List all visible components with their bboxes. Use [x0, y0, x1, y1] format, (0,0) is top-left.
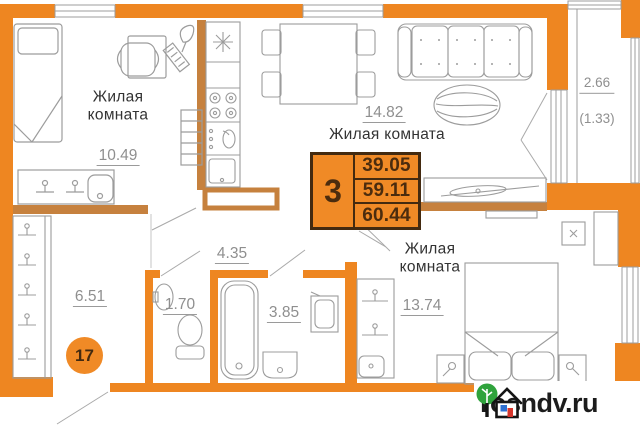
- apartment-summary-box: 3 39.05 59.11 60.44: [310, 152, 421, 230]
- kitchen-bar: [205, 190, 277, 208]
- watermark: rosndv.ru: [474, 381, 640, 425]
- plant: [180, 25, 193, 42]
- balcony-area: 2.66 (1.33): [579, 58, 614, 144]
- bedroom-left-area: 10.49: [97, 129, 140, 165]
- living-area-value: 39.05: [355, 155, 418, 178]
- chair: [262, 30, 281, 55]
- bath-sink: [263, 352, 297, 378]
- coat-hooks: [18, 224, 36, 359]
- kitchen-living-label: Жилая комната: [329, 126, 445, 144]
- chair: [356, 30, 375, 55]
- hallway-area: 6.51: [73, 270, 107, 306]
- desk: [128, 36, 166, 78]
- bedroom-right-area: 13.74: [401, 279, 444, 315]
- bathroom-area: 3.85: [267, 286, 301, 322]
- wall-tv: [486, 211, 537, 218]
- toilet: [178, 315, 202, 345]
- wc-area: 1.70: [163, 278, 197, 314]
- corridor-area: 4.35: [215, 227, 249, 263]
- dining-set: [262, 24, 375, 104]
- dining-table: [280, 24, 357, 104]
- bathtub: [221, 281, 258, 379]
- keyboard: [163, 43, 189, 72]
- chair: [262, 72, 281, 97]
- unit-number-badge: 17: [66, 337, 103, 374]
- pillow: [18, 28, 58, 54]
- pillow: [469, 352, 511, 380]
- fridge: [209, 159, 235, 183]
- rooms-count: 3: [313, 155, 355, 227]
- office-chair: [121, 43, 155, 76]
- stove: [210, 93, 236, 118]
- hallway-wardrobe: [13, 216, 51, 378]
- cabinet: [594, 212, 618, 265]
- single-bed: [14, 24, 62, 142]
- floor-plan: Жилая комната 10.49 14.82 Жилая комната …: [0, 0, 640, 425]
- total-area-value: 60.44: [355, 202, 418, 227]
- bedroom-right-label: Жилая комната: [400, 241, 461, 278]
- hood-icon: [213, 32, 233, 52]
- area-without-balcony-value: 59.11: [355, 178, 418, 203]
- bedroom-right-furniture: [357, 211, 618, 384]
- sofa: [398, 24, 532, 80]
- tv: [450, 184, 507, 198]
- bedroom-left-label: Жилая комната: [88, 89, 149, 126]
- kitchen-sink: [209, 129, 235, 148]
- brand-logo-icon: [474, 381, 526, 421]
- pillow: [512, 352, 554, 380]
- tv-stand: [424, 178, 546, 202]
- kitchen-living-area: 14.82: [363, 86, 406, 122]
- kitchen-appliances: [206, 22, 240, 187]
